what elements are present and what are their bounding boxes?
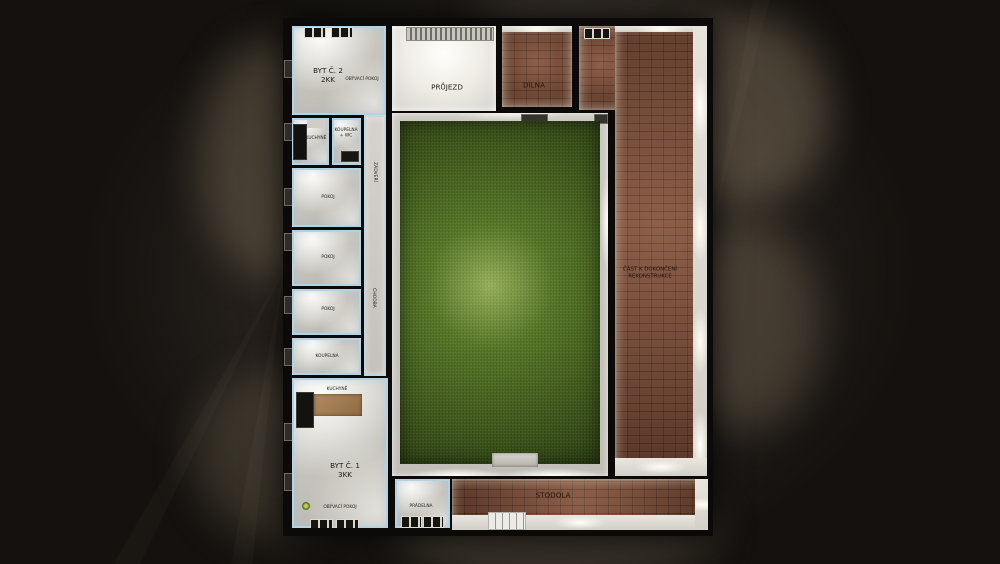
room-byt2-bath: KOUPELNA + WC (332, 118, 361, 165)
kitchen-counter (307, 120, 325, 128)
wall-highlight (502, 26, 572, 32)
room-corridor: ZÁDVEŘÍ CHODBA (364, 115, 386, 376)
room-label-byt2-living: OBÝVACÍ POKOJ (345, 76, 378, 81)
wall-highlight-right (693, 26, 707, 476)
room-label-byt2-kitchen: KUCHYNĚ (306, 135, 327, 140)
wall-highlight-bottom (615, 458, 707, 476)
room-byt2-living: BYT Č. 2 2KK OBÝVACÍ POKOJ (292, 26, 386, 115)
window-icon (310, 519, 333, 528)
room-label-zadveri: ZÁDVEŘÍ (373, 162, 378, 182)
room-pradelna: PRÁDELNA (395, 479, 450, 528)
room-label-chodba: CHODBA (372, 288, 377, 308)
room-label-byt1-living: OBÝVACÍ POKOJ (323, 504, 356, 509)
room-koupelna: KOUPELNA (292, 338, 361, 375)
window-icon (584, 28, 610, 39)
room-pokoj-1: POKOJ (292, 168, 361, 227)
window-icon (304, 27, 326, 38)
room-label-byt2-bath: KOUPELNA + WC (334, 128, 357, 138)
room-byt1: KUCHYNĚ BYT Č. 1 3KK OBÝVACÍ POKOJ (292, 378, 388, 528)
room-label-koupelna: KOUPELNA (315, 353, 338, 358)
wall-highlight-right (695, 479, 708, 530)
kitchen-counter (314, 394, 362, 416)
room-label-pokoj-3: POKOJ (321, 306, 334, 311)
room-label-pokoj-2: POKOJ (321, 254, 334, 259)
room-pokoj-2: POKOJ (292, 230, 361, 286)
window-icon (423, 516, 444, 528)
room-byt2-kitchen: KUCHYNĚ (292, 118, 329, 165)
kitchen-appliance (293, 124, 307, 160)
kitchen-appliance (296, 392, 314, 428)
light-rays-left (0, 0, 283, 564)
room-label-stodola: STODOLA (536, 492, 571, 501)
room-stodola: STODOLA (452, 479, 708, 530)
window-icon (331, 27, 353, 38)
barn-door-icon (488, 512, 526, 530)
courtyard-ramp (492, 453, 538, 467)
courtyard (392, 113, 608, 476)
room-label-dilna: DÍLNA (523, 82, 545, 91)
room-label-pradelna: PRÁDELNA (409, 503, 432, 508)
floorplan-render: BYT Č. 2 2KK OBÝVACÍ POKOJ KUCHYNĚ KOUPE… (0, 0, 1000, 564)
room-right-wing: ČÁST K DOKONČENÍ REKONSTRUKCE (615, 26, 707, 476)
room-label-byt1-kitchen: KUCHYNĚ (327, 386, 348, 391)
bath-fixture (341, 151, 359, 162)
room-label-byt1: BYT Č. 1 3KK (330, 462, 360, 479)
room-label-pokoj-1: POKOJ (321, 194, 334, 199)
gate-icon (406, 27, 494, 41)
plant (302, 502, 310, 510)
room-pokoj-3: POKOJ (292, 289, 361, 335)
room-label-prujezd: PRŮJEZD (431, 84, 463, 93)
courtyard-grass (400, 121, 600, 464)
room-label-byt2: BYT Č. 2 2KK (313, 67, 343, 84)
light-rays-right (713, 0, 1000, 564)
room-label-right-wing: ČÁST K DOKONČENÍ REKONSTRUKCE (623, 267, 677, 280)
window-icon (401, 516, 422, 528)
window-icon (336, 519, 359, 528)
room-prujezd: PRŮJEZD (392, 26, 496, 111)
room-dilna: DÍLNA (502, 26, 572, 107)
building-outline: BYT Č. 2 2KK OBÝVACÍ POKOJ KUCHYNĚ KOUPE… (283, 18, 713, 536)
